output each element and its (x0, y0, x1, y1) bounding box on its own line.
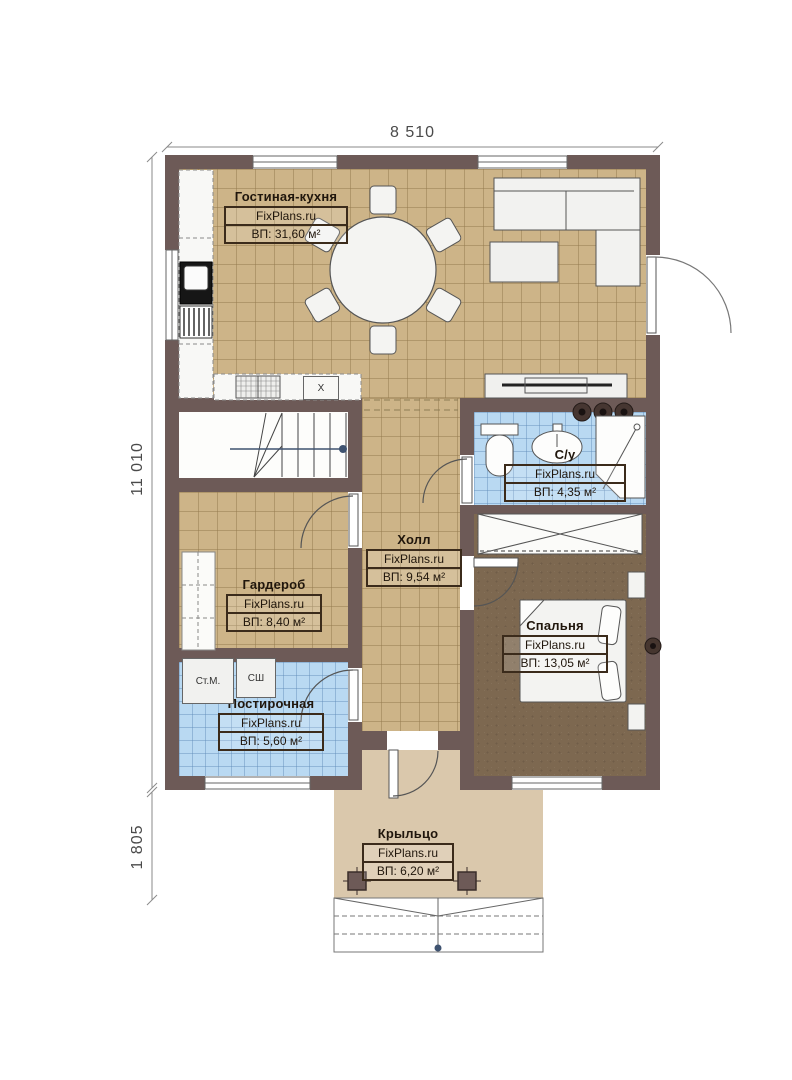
wall (474, 505, 646, 514)
brand-watermark: FixPlans.ru (364, 845, 452, 863)
room-area-hall: ВП: 9,54 м² (368, 569, 460, 585)
room-label-living: Гостиная-кухня FixPlans.ru ВП: 31,60 м² (224, 189, 348, 244)
room-area-bedroom: ВП: 13,05 м² (504, 655, 606, 671)
window-left-kitchen (166, 250, 178, 340)
floor-porch-entry (362, 750, 460, 790)
room-name-porch: Крыльцо (362, 826, 454, 841)
window-top-left (253, 156, 337, 168)
wall (165, 478, 348, 492)
wall (165, 155, 179, 250)
room-label-laundry: Постирочная FixPlans.ru ВП: 5,60 м² (218, 696, 324, 751)
brand-watermark: FixPlans.ru (504, 637, 606, 655)
room-name-hall: Холл (366, 532, 462, 547)
washing-machine-label: Ст.М. (196, 676, 221, 687)
wall (348, 412, 362, 790)
room-label-hall: Холл FixPlans.ru ВП: 9,54 м² (366, 532, 462, 587)
room-watermark-porch: FixPlans.ru ВП: 6,20 м² (362, 843, 454, 881)
room-area-living: ВП: 31,60 м² (226, 226, 346, 242)
washing-machine: Ст.М. (182, 658, 234, 704)
room-label-wardrobe: Гардероб FixPlans.ru ВП: 8,40 м² (226, 577, 322, 632)
wall (165, 398, 362, 412)
floor-staircase (179, 412, 348, 478)
room-name-wardrobe: Гардероб (226, 577, 322, 592)
room-watermark-wardrobe: FixPlans.ru ВП: 8,40 м² (226, 594, 322, 632)
room-area-bathroom: ВП: 4,35 м² (506, 484, 624, 500)
room-label-bathroom: С/у FixPlans.ru ВП: 4,35 м² (504, 447, 626, 502)
room-watermark-bathroom: FixPlans.ru ВП: 4,35 м² (504, 464, 626, 502)
room-watermark-living: FixPlans.ru ВП: 31,60 м² (224, 206, 348, 244)
room-watermark-laundry: FixPlans.ru ВП: 5,60 м² (218, 713, 324, 751)
window-top-right (478, 156, 567, 168)
wall (460, 412, 474, 790)
brand-watermark: FixPlans.ru (220, 715, 322, 733)
brand-watermark: FixPlans.ru (506, 466, 624, 484)
wall (438, 731, 460, 750)
drying-cabinet-label: СШ (248, 673, 264, 684)
floor-plan: 8 510 11 010 1 805 Гостиная-кухня FixPla… (0, 0, 792, 1080)
dimension-height-main: 11 010 (129, 409, 147, 529)
window-bottom-bedroom (512, 777, 602, 789)
room-watermark-bedroom: FixPlans.ru ВП: 13,05 м² (502, 635, 608, 673)
room-name-living: Гостиная-кухня (224, 189, 348, 204)
drying-cabinet: СШ (236, 658, 276, 698)
room-name-bedroom: Спальня (502, 618, 608, 633)
wall (646, 155, 660, 255)
room-area-wardrobe: ВП: 8,40 м² (228, 614, 320, 630)
wall (602, 776, 660, 790)
room-area-laundry: ВП: 5,60 м² (220, 733, 322, 749)
kitchen-x-unit: X (303, 376, 339, 400)
brand-watermark: FixPlans.ru (228, 596, 320, 614)
room-watermark-hall: FixPlans.ru ВП: 9,54 м² (366, 549, 462, 587)
door-terrace (646, 255, 731, 335)
room-label-porch: Крыльцо FixPlans.ru ВП: 6,20 м² (362, 826, 454, 881)
room-label-bedroom: Спальня FixPlans.ru ВП: 13,05 м² (502, 618, 608, 673)
window-bottom-laundry (205, 777, 310, 789)
dimension-width: 8 510 (165, 124, 660, 142)
wall (165, 776, 205, 790)
kitchen-x-label: X (318, 383, 325, 394)
porch-steps (334, 898, 543, 952)
wall (362, 731, 387, 750)
brand-watermark: FixPlans.ru (226, 208, 346, 226)
brand-watermark: FixPlans.ru (368, 551, 460, 569)
room-name-bathroom: С/у (504, 447, 626, 462)
wall (460, 398, 660, 412)
wall (337, 155, 478, 169)
room-area-porch: ВП: 6,20 м² (364, 863, 452, 879)
dimension-height-porch: 1 805 (129, 797, 147, 897)
